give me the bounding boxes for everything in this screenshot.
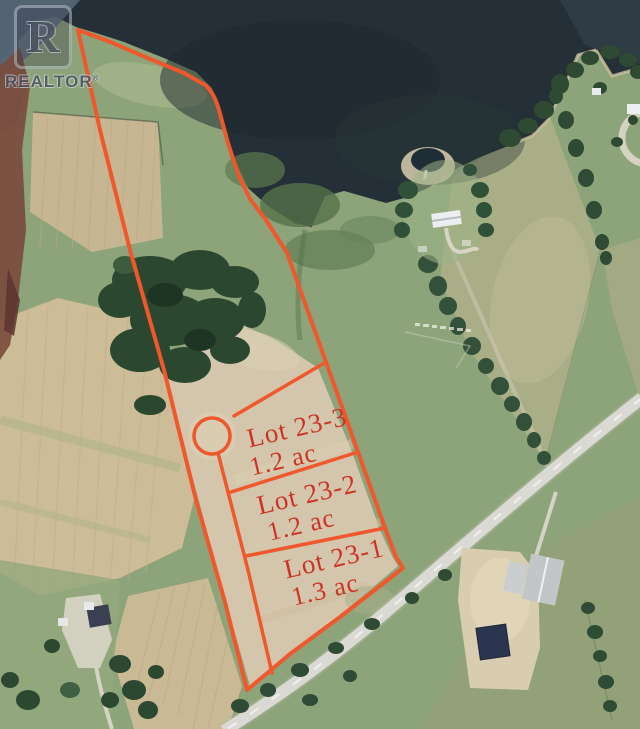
aerial-map-canvas: Lot 23-3 1.2 ac Lot 23-2 1.2 ac Lot 23-1… [0, 0, 640, 729]
farm-shed [58, 618, 68, 626]
aerial-photo: Lot 23-3 1.2 ac Lot 23-2 1.2 ac Lot 23-1… [0, 0, 640, 729]
house [627, 104, 640, 114]
shed [592, 88, 601, 95]
dark-roof-building [476, 624, 510, 660]
